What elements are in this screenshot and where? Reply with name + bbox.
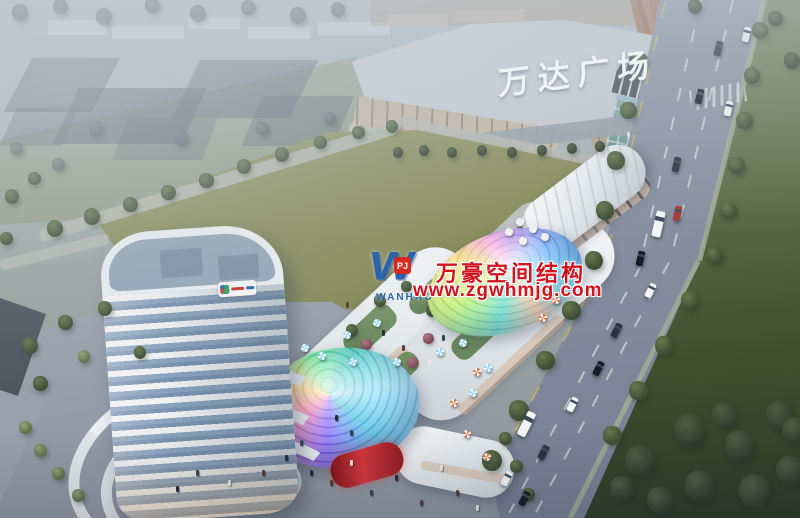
vignette [0, 0, 800, 518]
aerial-rendering-scene: 万达广场 W PJ WANHAO 万豪空间结构 www.zgwhmjg.com [0, 0, 800, 518]
